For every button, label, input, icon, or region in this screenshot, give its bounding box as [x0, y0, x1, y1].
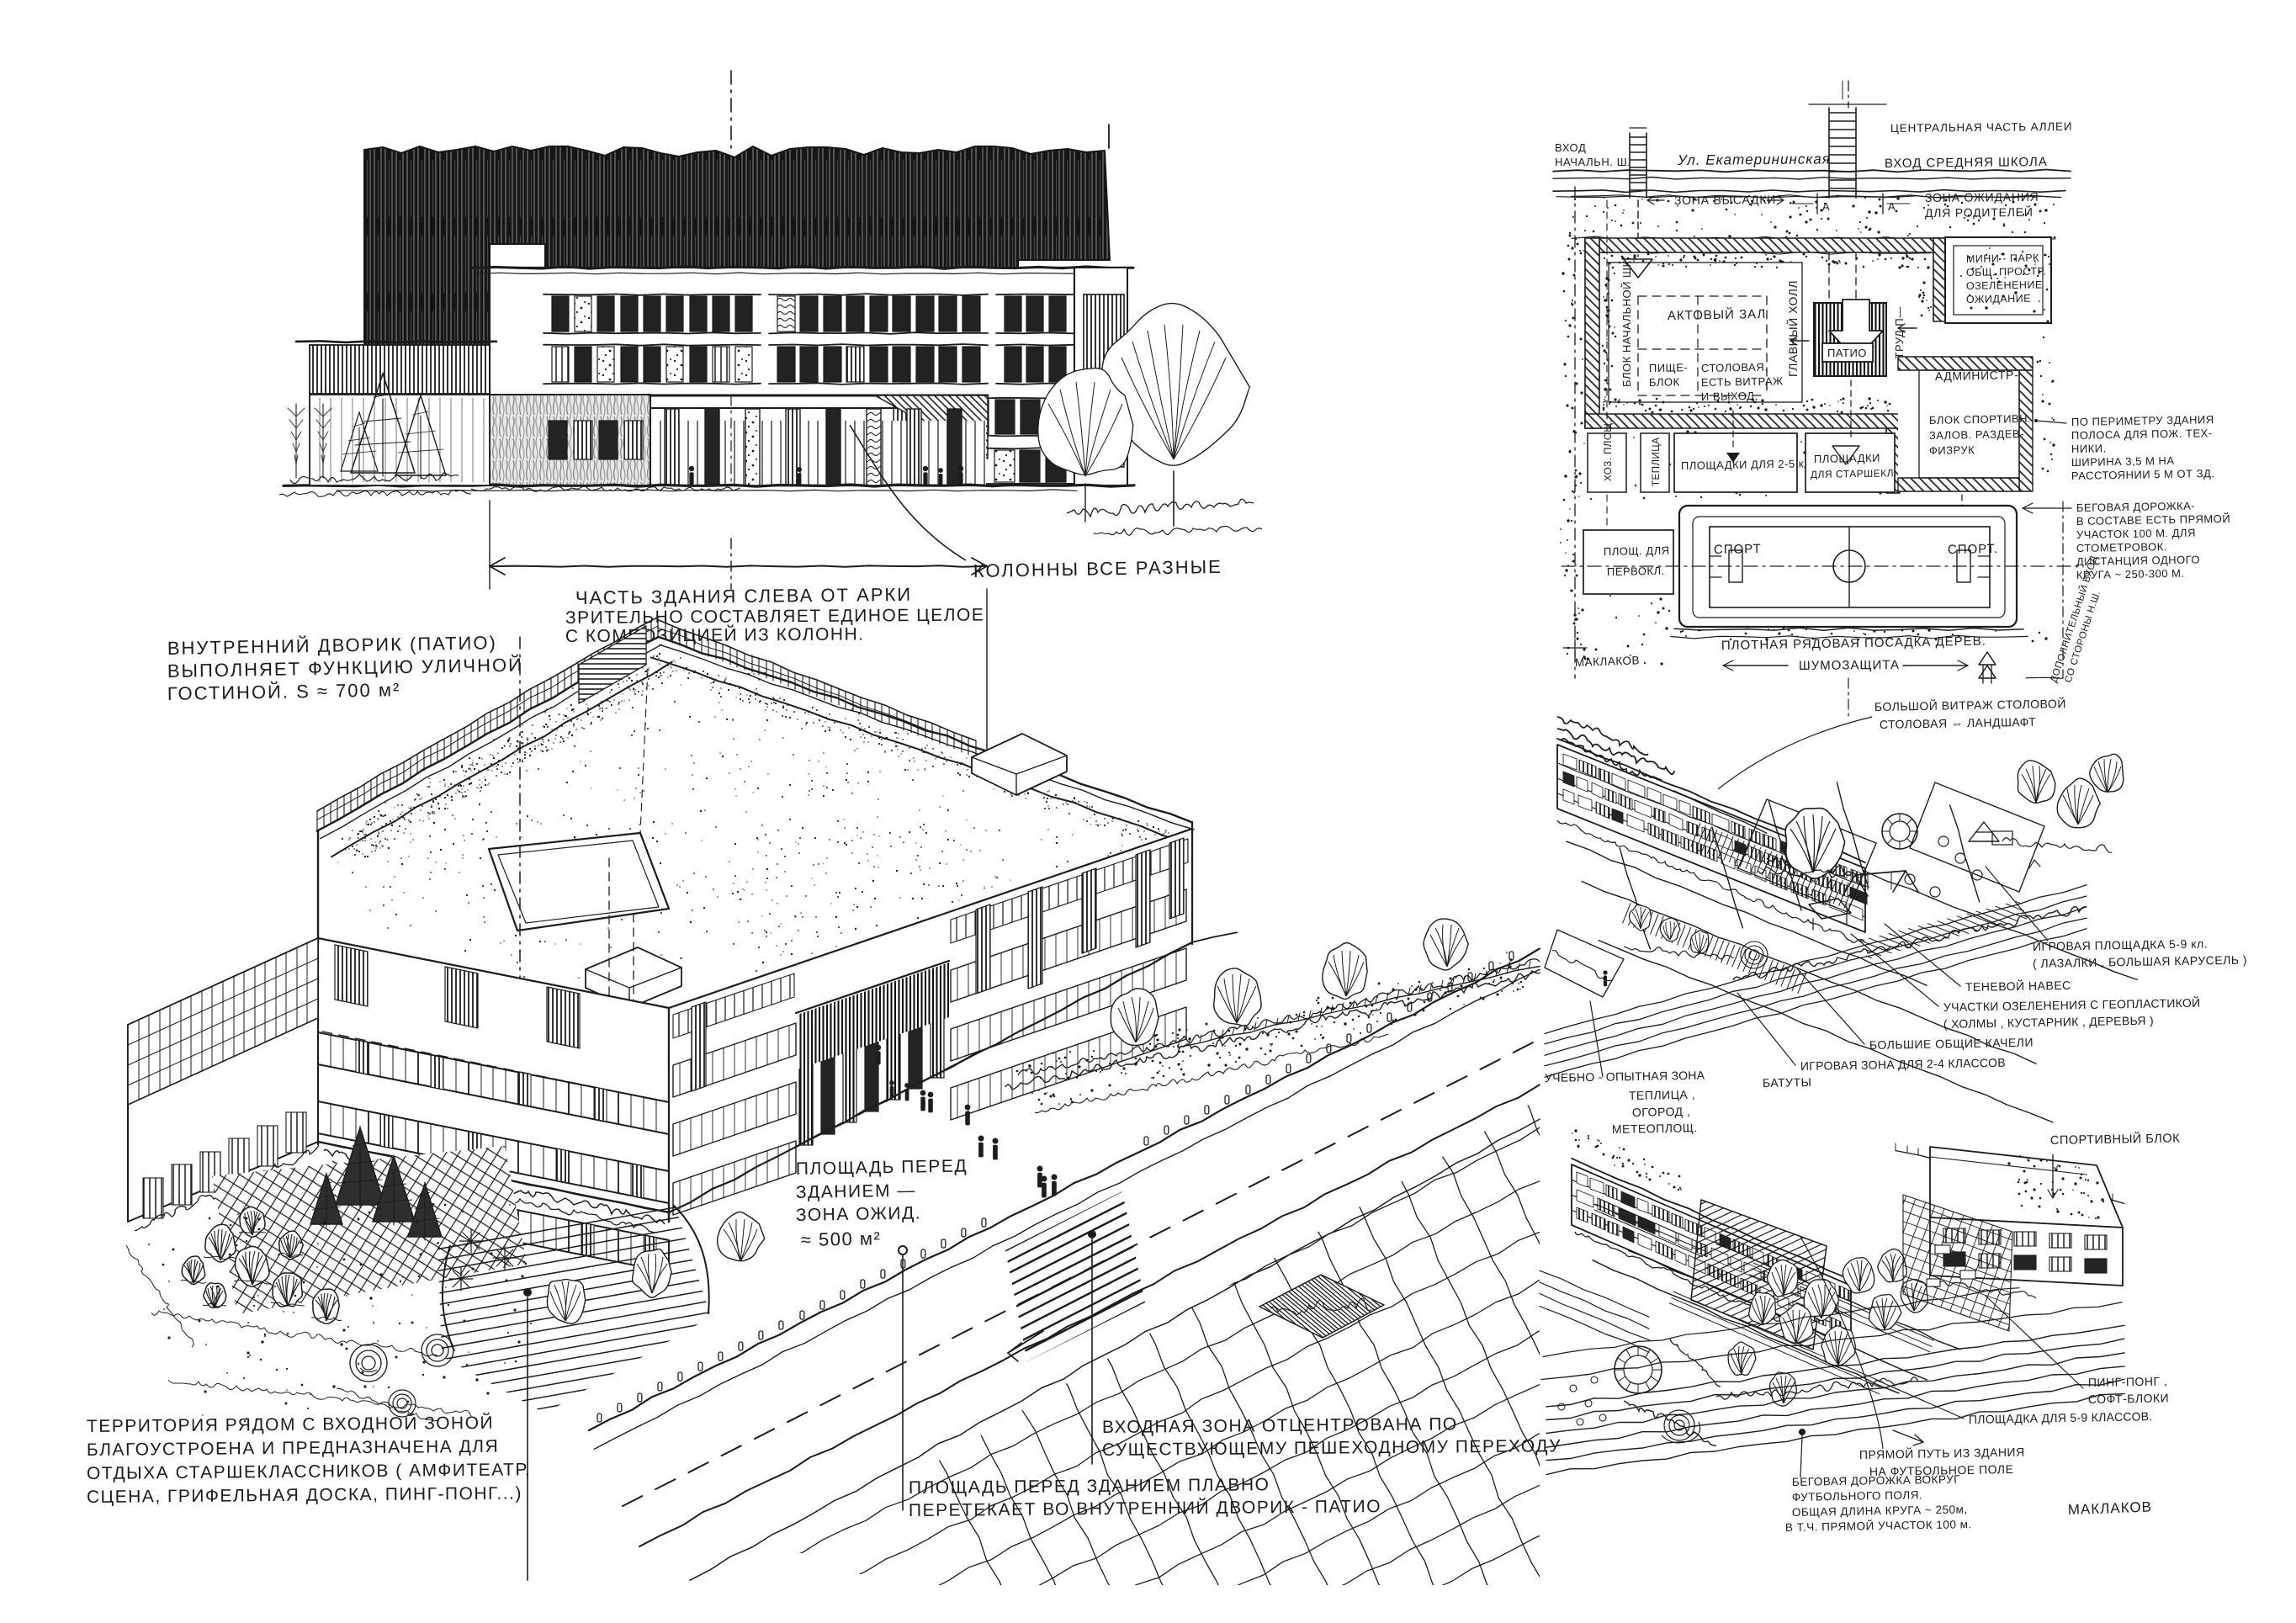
svg-text:СПОРТ.: СПОРТ. [1948, 542, 1999, 557]
svg-text:СТОМЕТРОВОК.: СТОМЕТРОВОК. [2076, 540, 2167, 554]
svg-text:ШИРИНА 3,5 М НА: ШИРИНА 3,5 М НА [2071, 454, 2175, 469]
svg-text:ФУТБОЛЬНОГО ПОЛЯ.: ФУТБОЛЬНОГО ПОЛЯ. [1792, 1488, 1922, 1504]
svg-text:ПИНГ-ПОНГ ,: ПИНГ-ПОНГ , [2088, 1374, 2168, 1389]
svg-text:ТЕНЕВОЙ НАВЕС: ТЕНЕВОЙ НАВЕС [1965, 978, 2071, 994]
svg-text:ЗОНА ОЖИДАНИЯ: ЗОНА ОЖИДАНИЯ [1925, 190, 2039, 204]
svg-text:ВХОД: ВХОД [1555, 141, 1586, 154]
svg-text:ШУМОЗАЩИТА: ШУМОЗАЩИТА [1799, 658, 1900, 673]
svg-text:ЕСТЬ ВИТРАЖ: ЕСТЬ ВИТРАЖ [1701, 374, 1784, 389]
svg-text:ОЖИДАНИЕ: ОЖИДАНИЕ [1966, 293, 2031, 305]
svg-text:ТЕРРИТОРИЯ РЯДОМ С ВХОДНОЙ ЗОН: ТЕРРИТОРИЯ РЯДОМ С ВХОДНОЙ ЗОНОЙ [87, 1413, 494, 1436]
svg-text:А: А [1822, 200, 1830, 213]
svg-text:БОЛЬШИЕ ОБЩИЕ КАЧЕЛИ: БОЛЬШИЕ ОБЩИЕ КАЧЕЛИ [1869, 1036, 2034, 1052]
svg-text:ВХОД СРЕДНЯЯ ШКОЛА: ВХОД СРЕДНЯЯ ШКОЛА [1885, 155, 2048, 171]
svg-text:МАКЛАКОВ: МАКЛАКОВ [2067, 1499, 2152, 1518]
svg-text:≈ 500 м²: ≈ 500 м² [801, 1228, 882, 1250]
svg-text:КОЛОННЫ ВСЕ РАЗНЫЕ: КОЛОННЫ ВСЕ РАЗНЫЕ [973, 556, 1222, 581]
svg-text:ПИЩЕ-: ПИЩЕ- [1649, 361, 1689, 374]
svg-text:БЛАГОУСТРОЕНА И ПРЕДНАЗНАЧЕНА: БЛАГОУСТРОЕНА И ПРЕДНАЗНАЧЕНА ДЛЯ [87, 1437, 499, 1460]
svg-text:СЦЕНА, ГРИФЕЛЬНАЯ ДОСКА, ПИНГ-: СЦЕНА, ГРИФЕЛЬНАЯ ДОСКА, ПИНГ-ПОНГ...) [87, 1483, 522, 1507]
svg-text:ТЕПЛИЦА: ТЕПЛИЦА [1652, 438, 1662, 486]
svg-text:ПЛОЩАДКИ ДЛЯ 2-5 кл.: ПЛОЩАДКИ ДЛЯ 2-5 кл. [1681, 457, 1815, 472]
svg-text:БЕГОВАЯ ДОРОЖКА-: БЕГОВАЯ ДОРОЖКА- [2076, 500, 2195, 514]
svg-text:ТЕПЛИЦА ,: ТЕПЛИЦА , [1629, 1088, 1695, 1102]
svg-text:УЧАСТОК 100 М. ДЛЯ: УЧАСТОК 100 М. ДЛЯ [2076, 527, 2196, 541]
svg-text:РАССТОЯНИИ 5 М ОТ ЗД.: РАССТОЯНИИ 5 М ОТ ЗД. [2071, 467, 2215, 482]
svg-text:ПЕРЕТЕКАЕТ ВО ВНУТРЕННИЙ ДВОРИ: ПЕРЕТЕКАЕТ ВО ВНУТРЕННИЙ ДВОРИК - ПАТИО [909, 1496, 1381, 1520]
svg-text:ОБЩ. ПРОСТР.: ОБЩ. ПРОСТР. [1966, 265, 2046, 278]
svg-text:СТОЛОВАЯ ⇔ ЛАНДШАФТ: СТОЛОВАЯ ⇔ ЛАНДШАФТ [1880, 715, 2036, 731]
svg-text:Ул. Екатерининская: Ул. Екатерининская [1677, 151, 1831, 168]
svg-text:МЕТЕОПЛОЩ.: МЕТЕОПЛОЩ. [1612, 1121, 1698, 1136]
svg-text:В СОСТАВЕ ЕСТЬ ПРЯМОЙ: В СОСТАВЕ ЕСТЬ ПРЯМОЙ [2076, 512, 2230, 528]
svg-text:НАЧАЛЬН. Ш.: НАЧАЛЬН. Ш. [1555, 156, 1631, 168]
svg-text:СПОРТ: СПОРТ [1714, 542, 1762, 557]
svg-text:С КОМПОЗИЦИЕЙ ИЗ КОЛОНН.: С КОМПОЗИЦИЕЙ ИЗ КОЛОНН. [565, 624, 865, 646]
svg-text:ФИЗРУК: ФИЗРУК [1929, 443, 1975, 457]
svg-text:ПО ПЕРИМЕТРУ ЗДАНИЯ: ПО ПЕРИМЕТРУ ЗДАНИЯ [2071, 413, 2214, 428]
svg-text:ПРЯМОЙ ПУТЬ ИЗ ЗДАНИЯ: ПРЯМОЙ ПУТЬ ИЗ ЗДАНИЯ [1859, 1445, 2025, 1461]
svg-text:А: А [1888, 200, 1896, 213]
svg-text:ПЛОЩАДЬ ПЕРЕД: ПЛОЩАДЬ ПЕРЕД [796, 1156, 968, 1179]
svg-text:ГОСТИНОЙ. S ≈ 700 м²: ГОСТИНОЙ. S ≈ 700 м² [167, 679, 401, 704]
svg-text:ЧАСТЬ ЗДАНИЯ СЛЕВА ОТ АРКИ: ЧАСТЬ ЗДАНИЯ СЛЕВА ОТ АРКИ [575, 584, 912, 608]
svg-text:ЗРИТЕЛЬНО СОСТАВЛЯЕТ ЕДИНОЕ ЦЕ: ЗРИТЕЛЬНО СОСТАВЛЯЕТ ЕДИНОЕ ЦЕЛОЕ [565, 606, 985, 628]
svg-text:ОГОРОД ,: ОГОРОД , [1632, 1105, 1691, 1119]
svg-text:ПАТИО: ПАТИО [1827, 347, 1867, 359]
svg-text:ЗДАНИЕМ —: ЗДАНИЕМ — [796, 1181, 916, 1202]
svg-text:СТОЛОВАЯ.: СТОЛОВАЯ. [1701, 361, 1768, 374]
svg-text:АКТОВЫЙ ЗАЛ: АКТОВЫЙ ЗАЛ [1668, 306, 1767, 323]
svg-text:ОЗЕЛЕНЕНИЕ: ОЗЕЛЕНЕНИЕ [1966, 278, 2043, 292]
svg-text:МАКЛАКОВ: МАКЛАКОВ [1575, 654, 1641, 669]
svg-text:СОФТ-БЛОКИ: СОФТ-БЛОКИ [2088, 1391, 2170, 1406]
svg-text:БАТУТЫ: БАТУТЫ [1763, 1075, 1812, 1090]
svg-text:БЛОК НАЧАЛЬНОЙ ШК.: БЛОК НАЧАЛЬНОЙ ШК. [1620, 257, 1633, 387]
svg-text:ГЛАВНЫЙ ХОЛЛ: ГЛАВНЫЙ ХОЛЛ [1785, 280, 1800, 377]
svg-text:ДЛЯ СТАРШЕКЛ.: ДЛЯ СТАРШЕКЛ. [1811, 467, 1897, 480]
svg-text:ЗОНА ВЫСАДКИ: ЗОНА ВЫСАДКИ [1674, 193, 1776, 207]
svg-text:МИНИ - ПАРК: МИНИ - ПАРК [1966, 252, 2039, 265]
svg-text:НИКИ.: НИКИ. [2071, 442, 2107, 455]
svg-text:ЗОНА ОЖИД.: ЗОНА ОЖИД. [796, 1203, 922, 1225]
svg-text:ПОЛОСА ДЛЯ ПОЖ. ТЕХ-: ПОЛОСА ДЛЯ ПОЖ. ТЕХ- [2071, 427, 2213, 442]
svg-text:ПЛОЩ. ДЛЯ: ПЛОЩ. ДЛЯ [1604, 544, 1670, 558]
svg-text:И ВЫХОД,: И ВЫХОД, [1701, 390, 1758, 403]
svg-text:СУЩЕСТВУЮЩЕМУ ПЕШЕХОДНОМУ ПЕРЕ: СУЩЕСТВУЮЩЕМУ ПЕШЕХОДНОМУ ПЕРЕХОДУ [1102, 1436, 1562, 1460]
svg-text:БЛОК СПОРТИВН.: БЛОК СПОРТИВН. [1929, 412, 2031, 427]
svg-text:ЗАЛОВ. РАЗДЕВ-: ЗАЛОВ. РАЗДЕВ- [1929, 427, 2024, 442]
svg-text:ЦЕНТРАЛЬНАЯ ЧАСТЬ АЛЛЕИ: ЦЕНТРАЛЬНАЯ ЧАСТЬ АЛЛЕИ [1890, 120, 2073, 135]
svg-text:ХОЗ. ПЛОЩ.: ХОЗ. ПЛОЩ. [1604, 420, 1614, 481]
svg-text:ВХОДНАЯ ЗОНА ОТЦЕНТРОВАНА ПО: ВХОДНАЯ ЗОНА ОТЦЕНТРОВАНА ПО [1102, 1414, 1458, 1437]
svg-text:ОТДЫХА СТАРШЕКЛАССНИКОВ ( АМФИ: ОТДЫХА СТАРШЕКЛАССНИКОВ ( АМФИТЕАТР, [87, 1460, 532, 1483]
svg-text:АДМИНИСТР-: АДМИНИСТР- [1935, 368, 2019, 383]
svg-text:ПЛОЩАДЬ ПЕРЕД ЗДАНИЕМ ПЛАВНО: ПЛОЩАДЬ ПЕРЕД ЗДАНИЕМ ПЛАВНО [909, 1475, 1270, 1498]
svg-text:ДЛЯ РОДИТЕЛЕЙ: ДЛЯ РОДИТЕЛЕЙ [1925, 204, 2034, 220]
svg-text:БЛОК: БЛОК [1649, 375, 1680, 389]
svg-text:УЧЕБНО - ОПЫТНАЯ ЗОНА: УЧЕБНО - ОПЫТНАЯ ЗОНА [1545, 1069, 1705, 1085]
